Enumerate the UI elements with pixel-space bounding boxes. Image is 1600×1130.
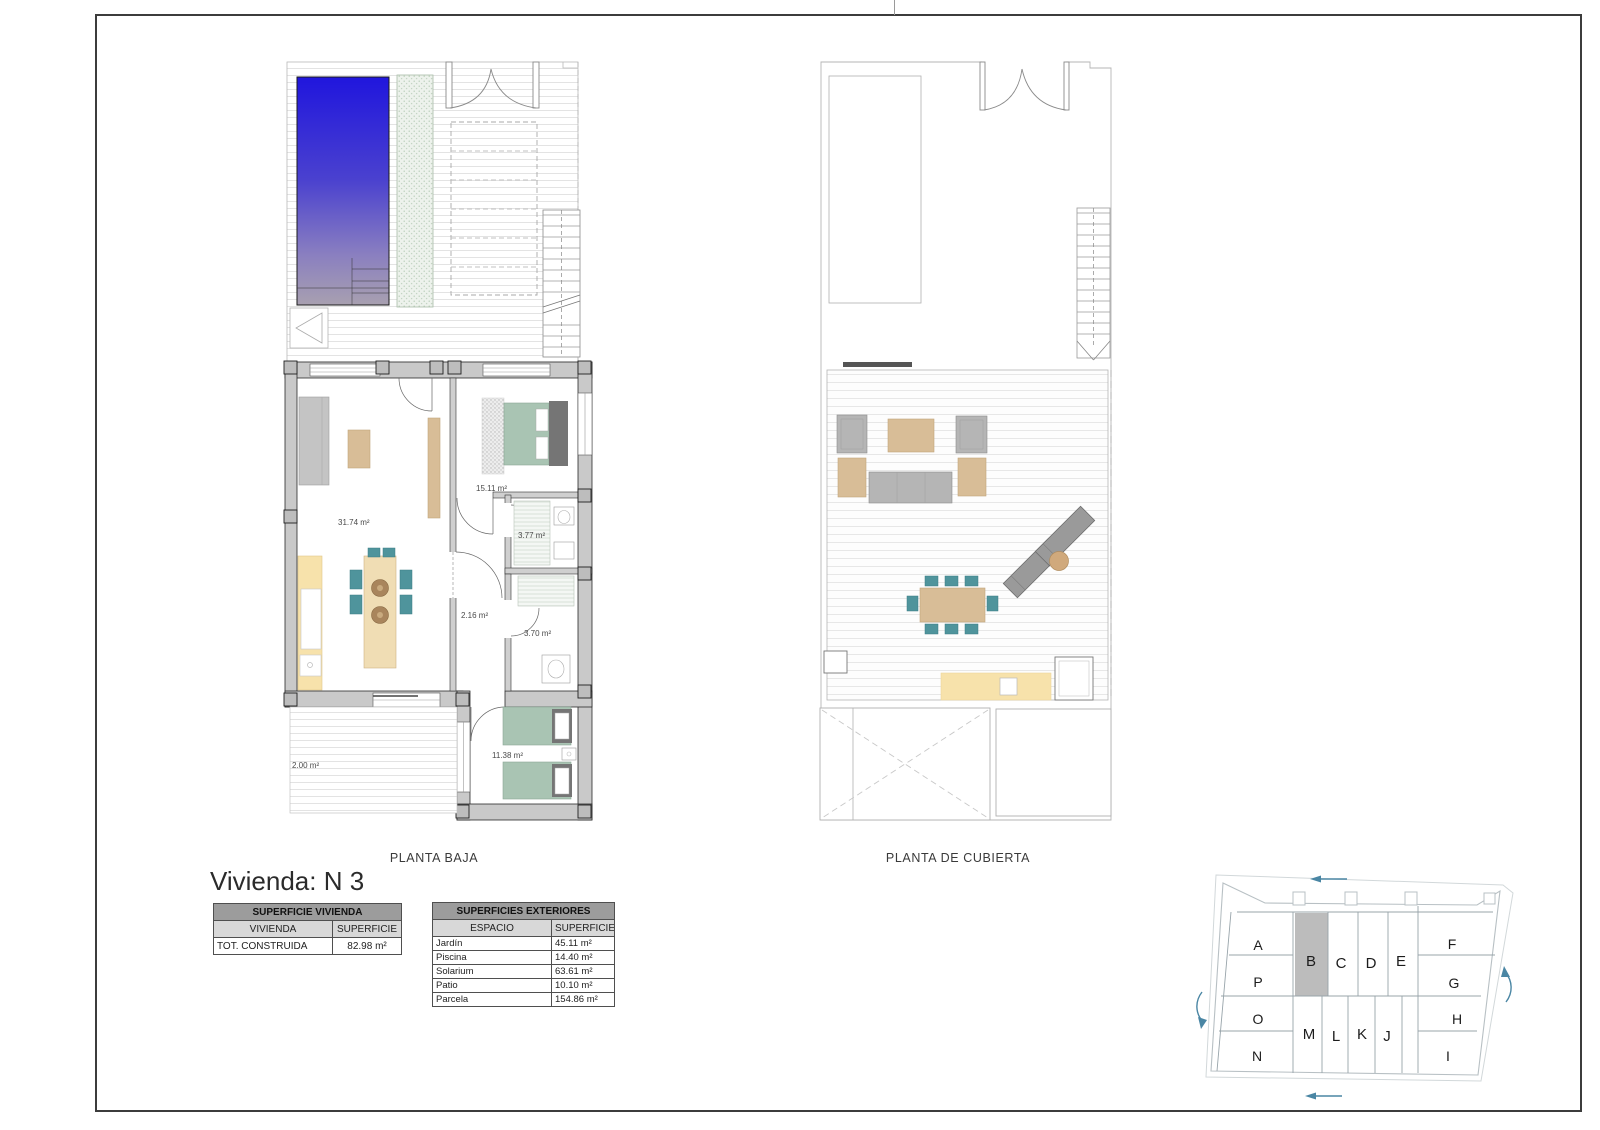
- table-header: SUPERFICIES EXTERIORES: [433, 903, 615, 920]
- rug: [482, 398, 504, 474]
- headboard: [549, 401, 568, 466]
- roof-gate-arch: [980, 62, 1069, 110]
- bedroom1-furniture: [482, 398, 568, 474]
- caption-planta-baja: PLANTA BAJA: [278, 851, 590, 865]
- room-label-living: 31.74 m²: [338, 518, 370, 527]
- row-label: Parcela: [433, 993, 552, 1007]
- row-label: Piscina: [433, 951, 552, 965]
- unit-label-j: J: [1383, 1028, 1391, 1045]
- unit-label-o: O: [1253, 1011, 1264, 1027]
- planta-cubierta-drawing: [800, 55, 1116, 825]
- row-label: TOT. CONSTRUIDA: [214, 938, 333, 955]
- row-value: 82.98 m²: [333, 938, 402, 955]
- unit-label-n: N: [1252, 1048, 1262, 1064]
- kitchen-counter: [298, 556, 322, 690]
- pool: [297, 77, 389, 305]
- unit-label-k: K: [1357, 1026, 1367, 1043]
- room-label-bath1: 3.77 m²: [518, 531, 545, 540]
- table-row: Piscina 14.40 m²: [433, 951, 615, 965]
- unit-label-c: C: [1336, 955, 1347, 972]
- planta-baja-drawing: 31.74 m² 15.11 m² 3.77 m² 2.16 m² 3.70 m…: [278, 55, 594, 825]
- table-row: Solarium 63.61 m²: [433, 965, 615, 979]
- coffee-table: [348, 430, 370, 468]
- table-row: Patio 10.10 m²: [433, 979, 615, 993]
- sofa: [299, 397, 329, 485]
- unit-label-i: I: [1446, 1048, 1450, 1064]
- armchair: [837, 415, 867, 453]
- unit-label-h: H: [1452, 1011, 1462, 1027]
- unit-label-b: B: [1306, 953, 1316, 970]
- roof-stairs: [1077, 208, 1110, 360]
- page-title: Vivienda: N 3: [210, 866, 364, 897]
- planter-box: [824, 651, 847, 673]
- plan-sheet-page: 31.74 m² 15.11 m² 3.77 m² 2.16 m² 3.70 m…: [0, 0, 1600, 1130]
- unit-label-l: L: [1332, 1028, 1340, 1045]
- roof-void-areas: [820, 708, 1111, 820]
- armchair: [956, 416, 987, 453]
- row-value: 10.10 m²: [552, 979, 615, 993]
- room-label-hall: 2.16 m²: [461, 611, 488, 620]
- unit-label-m: M: [1303, 1026, 1316, 1043]
- table-header: SUPERFICIE VIVIENDA: [214, 904, 402, 921]
- side-table: [838, 458, 866, 497]
- garden-area: [287, 62, 580, 362]
- coffee-table: [888, 419, 934, 452]
- nightstand: [562, 748, 576, 760]
- unit-label-a: A: [1253, 937, 1263, 953]
- table-row: Jardín 45.11 m²: [433, 937, 615, 951]
- row-label: Patio: [433, 979, 552, 993]
- col-header: ESPACIO: [433, 920, 552, 937]
- tv-unit: [428, 418, 440, 518]
- site-key-plan: A P B C D E F G O N M L K J H I: [1185, 855, 1535, 1105]
- table-superficies-exteriores: SUPERFICIES EXTERIORES ESPACIO SUPERFICI…: [432, 902, 615, 1007]
- side-table: [958, 458, 986, 496]
- unit-label-g: G: [1449, 975, 1460, 991]
- room-label-bedroom2: 11.38 m²: [492, 751, 523, 760]
- table-row: TOT. CONSTRUIDA 82.98 m²: [214, 938, 402, 955]
- exterior-stairs: [543, 210, 580, 357]
- unit-label-d: D: [1366, 955, 1377, 972]
- sofa: [869, 472, 952, 503]
- table-superficie-vivienda: SUPERFICIE VIVIENDA VIVIENDA SUPERFICIE …: [213, 903, 402, 955]
- row-label: Solarium: [433, 965, 552, 979]
- col-header: SUPERFICIE: [333, 921, 402, 938]
- col-header: SUPERFICIE: [552, 920, 615, 937]
- unit-label-p: P: [1253, 974, 1262, 990]
- storage-box: [1055, 657, 1093, 700]
- gate-symbol: [290, 308, 328, 348]
- row-value: 45.11 m²: [552, 937, 615, 951]
- unit-label-f: F: [1448, 936, 1457, 952]
- pool-void-outline: [829, 76, 921, 303]
- room-label-patio: 2.00 m²: [292, 761, 319, 770]
- lawn-strip: [397, 75, 433, 307]
- sheet-top-tick: [894, 0, 895, 15]
- row-value: 154.86 m²: [552, 993, 615, 1007]
- unit-label-e: E: [1396, 953, 1406, 970]
- round-table: [1050, 552, 1069, 571]
- caption-planta-cubierta: PLANTA DE CUBIERTA: [800, 851, 1116, 865]
- patio-deck: [290, 707, 457, 813]
- living-furniture: [298, 397, 440, 690]
- table-row: Parcela 154.86 m²: [433, 993, 615, 1007]
- row-value: 63.61 m²: [552, 965, 615, 979]
- row-label: Jardín: [433, 937, 552, 951]
- room-label-bath2: 3.70 m²: [524, 629, 551, 638]
- room-label-bedroom1: 15.11 m²: [476, 484, 507, 493]
- dining-table: [920, 588, 985, 622]
- row-value: 14.40 m²: [552, 951, 615, 965]
- col-header: VIVIENDA: [214, 921, 333, 938]
